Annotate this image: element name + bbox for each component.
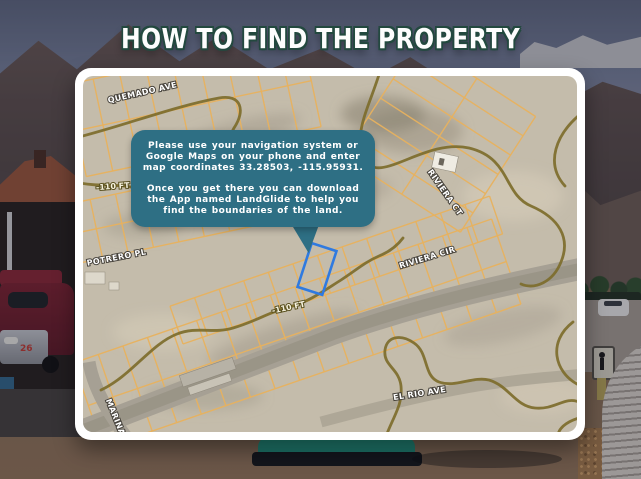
street-label-riviera-ct: RIVIERA CT bbox=[426, 168, 465, 218]
page-title: HOW TO FIND THE PROPERTY bbox=[0, 22, 641, 55]
bubble-line: Please use your navigation system or bbox=[135, 141, 371, 152]
bubble-line: Once you get there you can download bbox=[135, 184, 371, 195]
bubble-line: the App named LandGlide to help you bbox=[135, 195, 371, 206]
map-card: QUEMADO AVE POTRERO PL RIVIERA CT RIVIER… bbox=[75, 68, 585, 440]
bubble-line: map coordinates 33.28503, -115.95931. bbox=[135, 163, 371, 174]
speech-bubble: Please use your navigation system or Goo… bbox=[131, 130, 375, 227]
bubble-line: find the boundaries of the land. bbox=[135, 206, 371, 217]
bubble-paragraph-gap bbox=[135, 174, 371, 184]
page-title-text: HOW TO FIND THE PROPERTY bbox=[121, 22, 520, 55]
street-label-potrero: POTRERO PL bbox=[86, 247, 147, 267]
bubble-line: Google Maps on your phone and enter bbox=[135, 152, 371, 163]
contour-label-center: -110 FT bbox=[271, 300, 306, 316]
street-label-quemado: QUEMADO AVE bbox=[107, 80, 178, 105]
satellite-parcel-map: QUEMADO AVE POTRERO PL RIVIERA CT RIVIER… bbox=[83, 76, 577, 432]
contour-label-left: -110 FT bbox=[96, 181, 131, 192]
